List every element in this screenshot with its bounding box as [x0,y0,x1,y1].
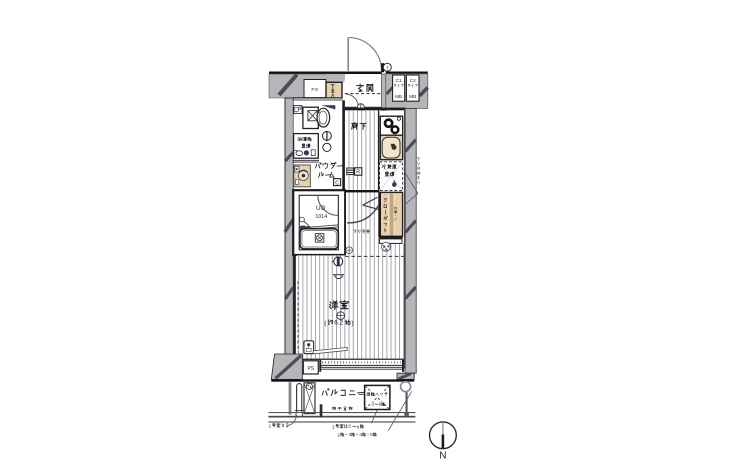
svg-text:N: N [439,451,446,462]
svg-text:): ) [351,320,353,327]
svg-text:3: 3 [349,432,352,437]
svg-text:4: 4 [359,432,362,437]
svg-text:MB: MB [395,94,402,99]
svg-text:1: 1 [269,424,272,429]
svg-text:MB: MB [409,94,416,99]
svg-text:R: R [356,170,360,176]
svg-text:1014: 1014 [315,214,327,220]
svg-text:C: C [335,180,339,186]
svg-text:PS: PS [307,366,314,372]
svg-text:C1: C1 [396,78,402,83]
svg-text:5: 5 [370,432,373,437]
svg-text:6.2: 6.2 [334,320,343,327]
svg-text:PS: PS [311,87,319,93]
svg-text:2: 2 [348,424,351,430]
svg-text:C2: C2 [410,78,416,83]
